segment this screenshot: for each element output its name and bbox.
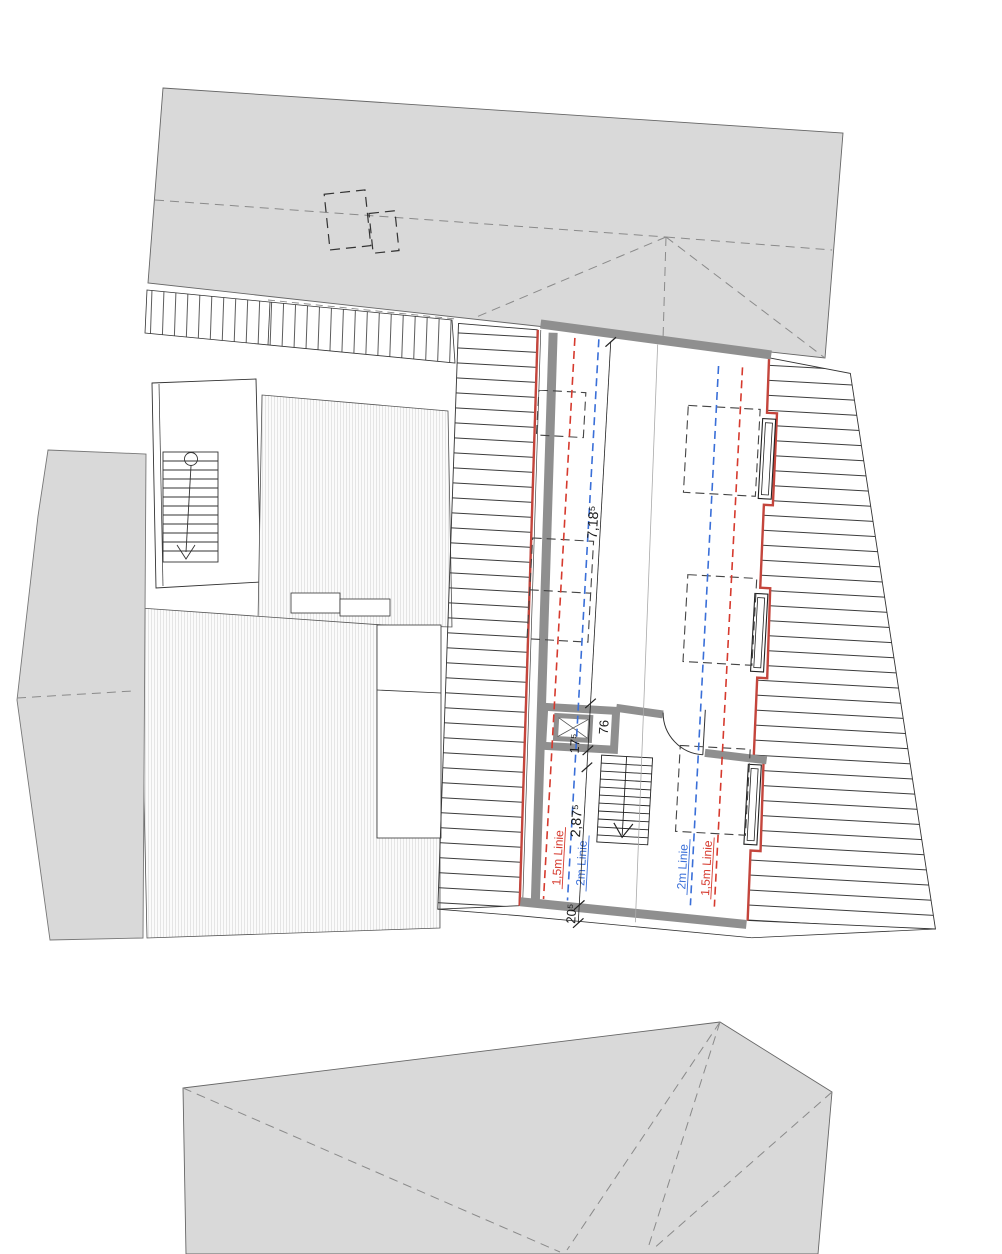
clearance-rect-right-1 bbox=[683, 405, 760, 496]
clearance-rect-right-2 bbox=[683, 575, 757, 666]
roof-fine-hatch-lower bbox=[140, 608, 441, 938]
neighbor-building-bottom bbox=[183, 1022, 832, 1254]
staircase-ground bbox=[163, 452, 218, 562]
floor-plan-canvas: 1,5m Linie 2m Linie 2m Linie 1,5m Linie … bbox=[0, 0, 1002, 1254]
dim-chimney-76: 76 bbox=[596, 720, 612, 735]
height-line-blue-right bbox=[688, 366, 720, 905]
clearance-rect-left-1 bbox=[536, 390, 585, 438]
dim-width-287: 2,87⁵ bbox=[567, 804, 585, 838]
window-3 bbox=[744, 764, 761, 845]
neighbor-building-bottom-roof bbox=[183, 1022, 832, 1254]
dim-length-718: 7,18⁵ bbox=[584, 505, 602, 539]
neighbor-building-left-roof bbox=[17, 450, 146, 940]
neighbor-building-left bbox=[17, 450, 146, 940]
dormer-notch bbox=[377, 625, 441, 838]
wall-stair-top bbox=[616, 708, 663, 715]
height-line-red-right bbox=[712, 367, 744, 906]
wall-bottom bbox=[520, 902, 747, 925]
site-plan-drawing: 1,5m Linie 2m Linie 2m Linie 1,5m Linie … bbox=[0, 0, 1002, 1254]
dim-seg-175: 17⁵ bbox=[567, 733, 583, 754]
attic-staircase bbox=[597, 755, 653, 845]
roof-fine-hatch-upper bbox=[258, 395, 452, 627]
left-wing bbox=[140, 379, 452, 938]
window-2 bbox=[751, 593, 768, 672]
dim-wall-205: 20⁵ bbox=[563, 903, 579, 924]
attic-floor-plan: 1,5m Linie 2m Linie 2m Linie 1,5m Linie … bbox=[425, 319, 968, 948]
door-leaf bbox=[703, 710, 706, 755]
